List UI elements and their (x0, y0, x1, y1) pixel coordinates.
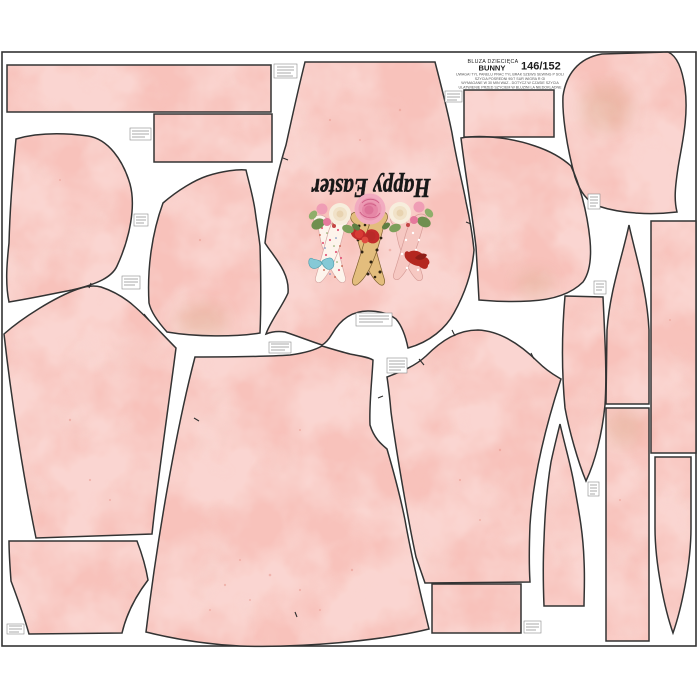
svg-text:146/152: 146/152 (521, 61, 561, 73)
svg-text:BUNNY: BUNNY (478, 64, 505, 73)
svg-text:ULATWIENIE PRZED SZYCIEM W BLU: ULATWIENIE PRZED SZYCIEM W BLUZINI LA NI… (459, 85, 563, 89)
